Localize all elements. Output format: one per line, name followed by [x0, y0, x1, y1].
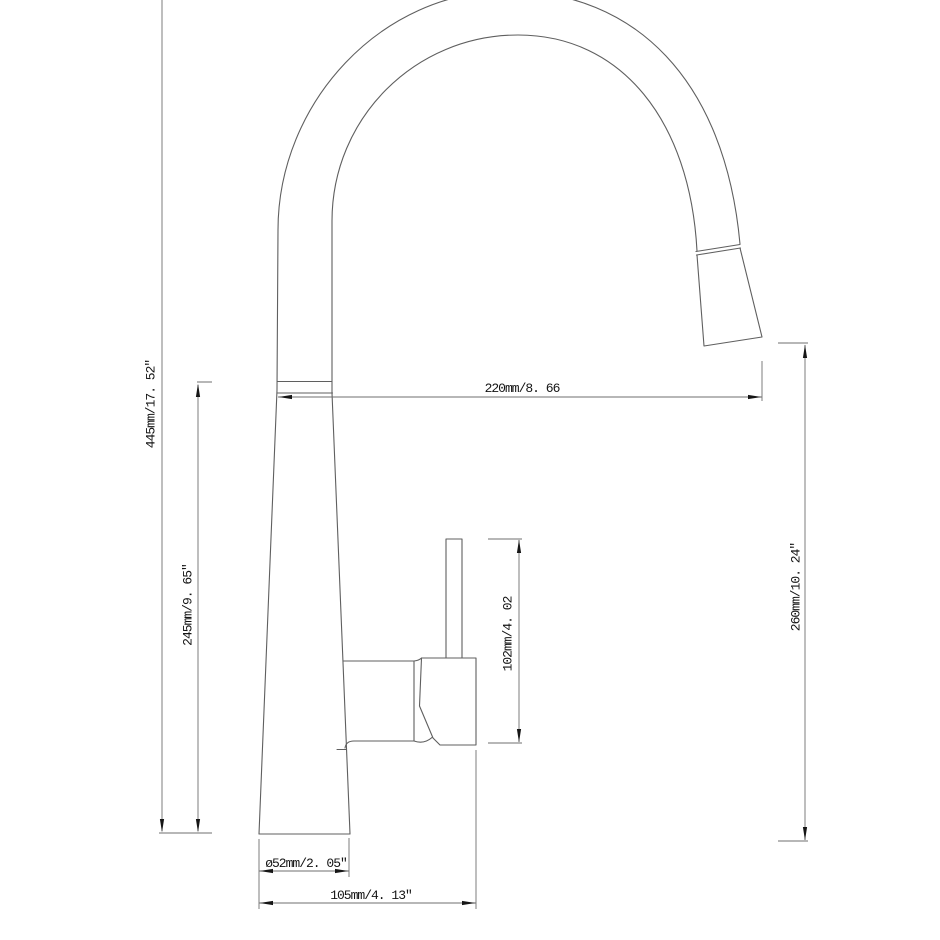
- dim-handle-height-arrow-down: [517, 729, 521, 743]
- dim-overall-height: 445mm/17. 52″: [144, 0, 213, 833]
- faucet-technical-drawing: 445mm/17. 52″ 245mm/9. 65″ 220mm/8. 66: [0, 0, 940, 940]
- dim-handle-height-label: 102mm/4. 02: [501, 596, 516, 671]
- dim-handle-height-arrow-up: [517, 540, 521, 554]
- dim-upper-body-height-arrow-down: [196, 819, 200, 833]
- dim-outlet-height: 260mm/10. 24″: [778, 343, 808, 841]
- dimension-annotations: 445mm/17. 52″ 245mm/9. 65″ 220mm/8. 66: [144, 0, 809, 909]
- dim-outlet-height-arrow-down: [803, 827, 807, 841]
- spout-collar: [277, 382, 333, 394]
- faucet-outer-profile: [259, 0, 740, 834]
- dim-overall-height-line: [159, 0, 212, 833]
- dim-upper-body-height-arrow-up: [196, 384, 200, 398]
- dim-base-diameter-label: ø52mm/2. 05″: [265, 856, 347, 871]
- faucet-inner-profile: [332, 35, 697, 834]
- handle-base: [420, 658, 477, 745]
- dim-upper-body-height: 245mm/9. 65″: [181, 382, 213, 833]
- dim-spout-reach-arrow-right: [748, 395, 762, 399]
- dim-spout-reach-arrow-left: [279, 395, 293, 399]
- valve-body: [337, 661, 414, 750]
- dim-base-diameter: ø52mm/2. 05″: [259, 838, 349, 877]
- dim-base-width-label: 105mm/4. 13″: [330, 888, 412, 903]
- drawing-canvas: 445mm/17. 52″ 245mm/9. 65″ 220mm/8. 66: [0, 0, 940, 940]
- handle-base-fillet: [414, 738, 432, 743]
- dim-upper-body-height-line: [197, 382, 212, 831]
- dim-base-width-arrow-right: [462, 901, 476, 905]
- dim-spout-reach: 220mm/8. 66: [278, 361, 762, 401]
- dim-base-width-line: [259, 750, 476, 909]
- dim-upper-body-height-label: 245mm/9. 65″: [181, 564, 196, 646]
- valve-handle-connector: [414, 658, 422, 661]
- sprayhead-body: [697, 248, 762, 346]
- dim-outlet-height-arrow-up: [803, 345, 807, 359]
- sprayhead-seam: [696, 245, 741, 256]
- dim-spout-reach-label: 220mm/8. 66: [485, 381, 560, 396]
- dim-overall-height-arrow-down: [160, 819, 164, 833]
- dim-outlet-height-label: 260mm/10. 24″: [789, 543, 804, 632]
- handle-lever-rod: [446, 539, 462, 658]
- faucet-outline: [259, 0, 762, 834]
- dim-base-width: 105mm/4. 13″: [259, 750, 476, 909]
- dim-overall-height-label: 445mm/17. 52″: [144, 360, 159, 449]
- dim-handle-height: 102mm/4. 02: [488, 539, 522, 743]
- dim-base-width-arrow-left: [260, 901, 274, 905]
